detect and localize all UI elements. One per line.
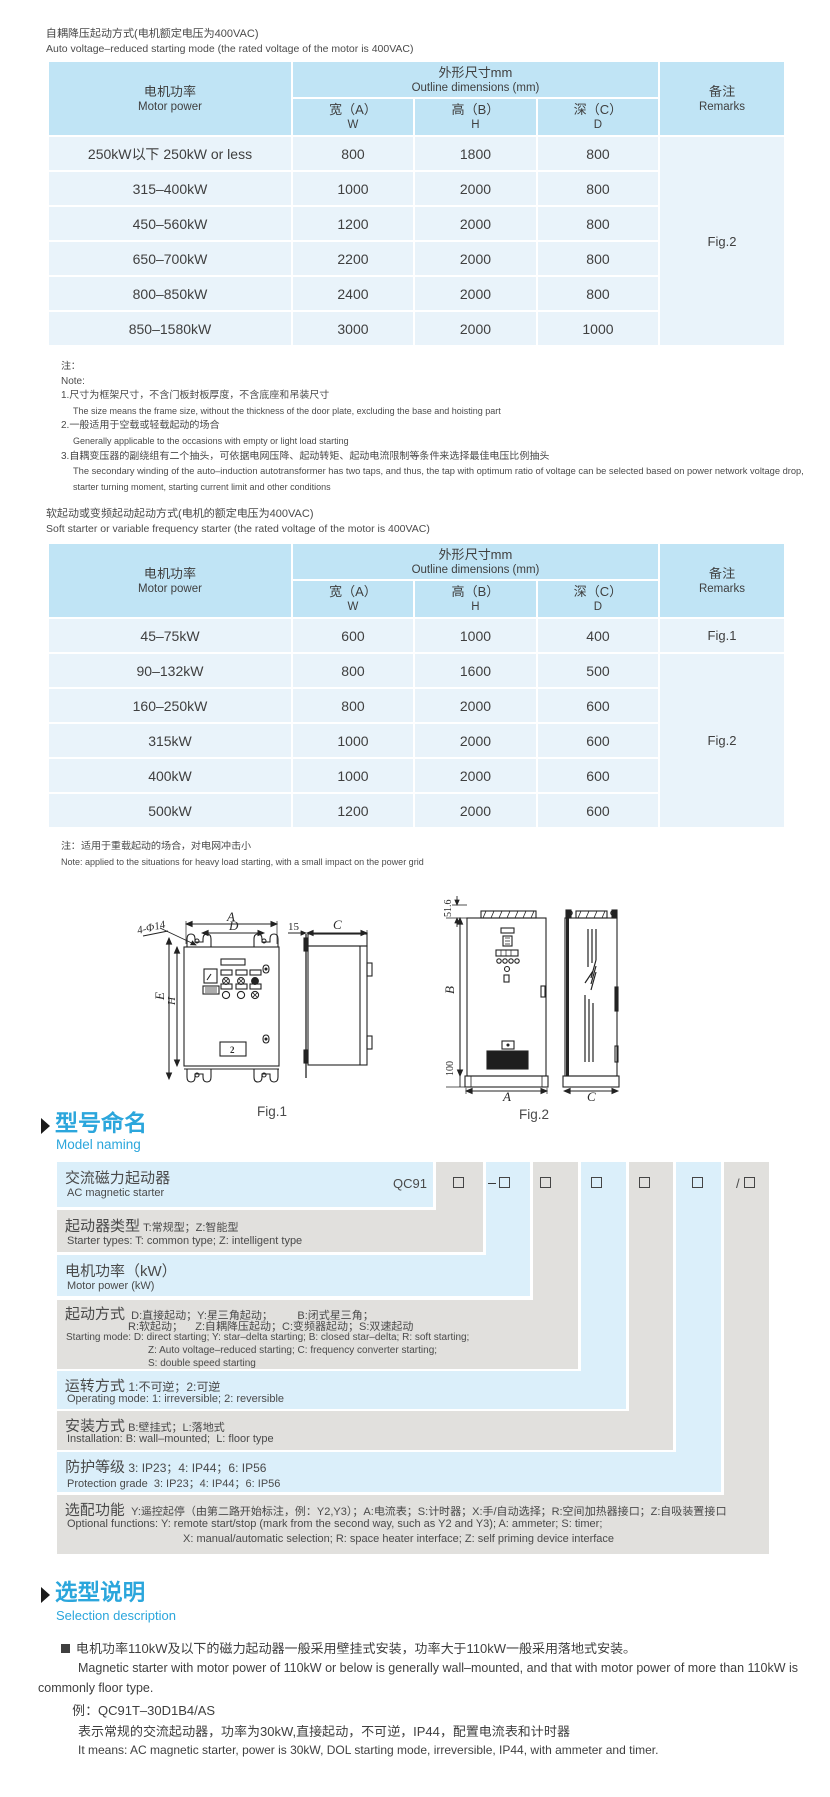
svg-text:H: H	[166, 996, 178, 1006]
svg-text:100: 100	[445, 1061, 456, 1076]
svg-text:B: B	[442, 986, 457, 994]
svg-text:C: C	[333, 917, 342, 932]
svg-text:C: C	[587, 1089, 596, 1104]
svg-text:2: 2	[230, 1045, 235, 1055]
svg-text:E: E	[152, 992, 167, 1001]
svg-text:51.6: 51.6	[443, 900, 454, 918]
svg-text:A: A	[502, 1089, 511, 1104]
svg-text:D: D	[228, 918, 239, 933]
svg-text:15: 15	[288, 921, 300, 933]
